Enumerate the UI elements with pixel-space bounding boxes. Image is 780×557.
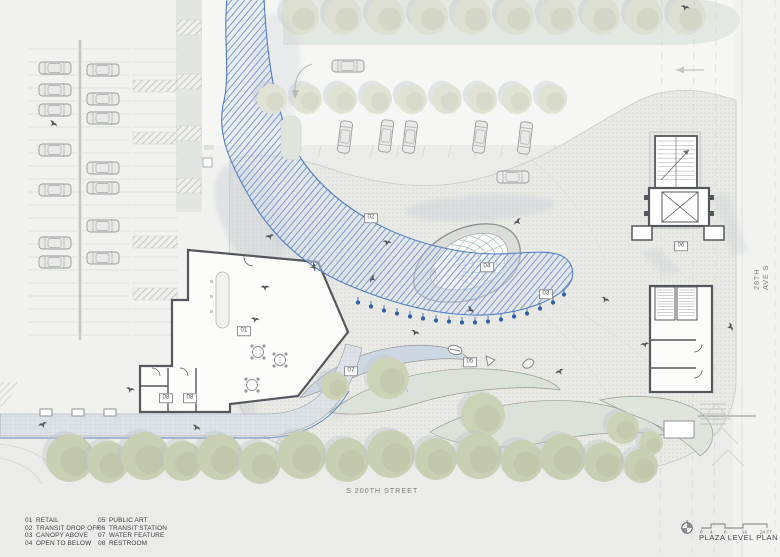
car bbox=[87, 182, 119, 194]
legend-num: 07 bbox=[98, 532, 109, 540]
plan-marker-07: 07 bbox=[344, 366, 358, 376]
plaza-level-plan-drawing: 010203040506070808 S 200TH STREET 28TH A… bbox=[0, 0, 780, 557]
canopy-column bbox=[395, 311, 399, 315]
car bbox=[39, 184, 71, 196]
legend-num: 05 bbox=[98, 517, 109, 525]
parking-island bbox=[281, 116, 301, 160]
canopy-column bbox=[408, 314, 412, 318]
legend-num: 02 bbox=[25, 525, 36, 533]
plan-marker-04: 04 bbox=[480, 262, 494, 272]
canopy-column bbox=[499, 317, 503, 321]
canopy-column bbox=[421, 316, 425, 320]
plan-marker-06: 06 bbox=[674, 241, 688, 251]
car bbox=[87, 64, 119, 76]
north-arrow-icon bbox=[682, 520, 692, 533]
plan-marker-08: 08 bbox=[183, 393, 197, 403]
retail-counter bbox=[216, 272, 229, 328]
canopy-column bbox=[434, 318, 438, 322]
car bbox=[39, 256, 71, 268]
bench bbox=[664, 421, 694, 438]
legend-column-1: 01RETAIL 02TRANSIT DROP OFF 03CANOPY ABO… bbox=[25, 517, 100, 547]
street-label-east: 28TH AVE S bbox=[752, 262, 770, 290]
canopy-column bbox=[369, 304, 373, 308]
tree-row-drive bbox=[253, 81, 567, 114]
site-plan-svg bbox=[0, 0, 780, 557]
car bbox=[39, 144, 71, 156]
legend-label: TRANSIT DROP OFF bbox=[36, 525, 100, 532]
legend-label: RETAIL bbox=[36, 517, 59, 524]
canopy-column bbox=[382, 308, 386, 312]
legend-column-2: 05PUBLIC ART 06TRANSIT STATION 07WATER F… bbox=[98, 517, 167, 547]
canopy-column bbox=[447, 319, 451, 323]
legend-label: WATER FEATURE bbox=[109, 532, 164, 539]
car bbox=[87, 93, 119, 105]
plan-marker-03: 03 bbox=[539, 289, 553, 299]
car bbox=[39, 237, 71, 249]
bench bbox=[40, 409, 52, 416]
car bbox=[497, 171, 529, 183]
bench bbox=[104, 409, 116, 416]
plan-marker-08: 08 bbox=[159, 393, 173, 403]
car bbox=[87, 112, 119, 124]
legend-label: OPEN TO BELOW bbox=[36, 540, 91, 547]
car bbox=[39, 104, 71, 116]
canopy-column bbox=[562, 292, 566, 296]
canopy-column bbox=[473, 320, 477, 324]
plan-marker-05: 05 bbox=[463, 357, 477, 367]
car bbox=[332, 60, 364, 72]
plan-marker-02: 02 bbox=[364, 213, 378, 223]
canopy-column bbox=[551, 300, 555, 304]
plan-title: PLAZA LEVEL PLAN bbox=[699, 533, 778, 542]
street-label-south: S 200TH STREET bbox=[346, 486, 418, 495]
car bbox=[39, 62, 71, 74]
legend-num: 08 bbox=[98, 540, 109, 548]
legend-label: RESTROOM bbox=[109, 540, 147, 547]
car bbox=[39, 84, 71, 96]
bench bbox=[72, 409, 84, 416]
legend-num: 04 bbox=[25, 540, 36, 548]
canopy-column bbox=[538, 306, 542, 310]
elevator bbox=[649, 188, 709, 226]
canopy-column bbox=[460, 320, 464, 324]
car bbox=[87, 162, 119, 174]
legend-label: TRANSIT STATION bbox=[109, 525, 167, 532]
legend-num: 03 bbox=[25, 532, 36, 540]
car bbox=[87, 252, 119, 264]
car bbox=[87, 220, 119, 232]
canopy-column bbox=[512, 314, 516, 318]
canopy-column bbox=[486, 319, 490, 323]
legend-label: CANOPY ABOVE bbox=[36, 532, 88, 539]
legend-num: 01 bbox=[25, 517, 36, 525]
legend-label: PUBLIC ART bbox=[109, 517, 148, 524]
legend-num: 06 bbox=[98, 525, 109, 533]
canopy-column bbox=[356, 300, 360, 304]
canopy-column bbox=[525, 311, 529, 315]
plan-marker-01: 01 bbox=[237, 326, 251, 336]
